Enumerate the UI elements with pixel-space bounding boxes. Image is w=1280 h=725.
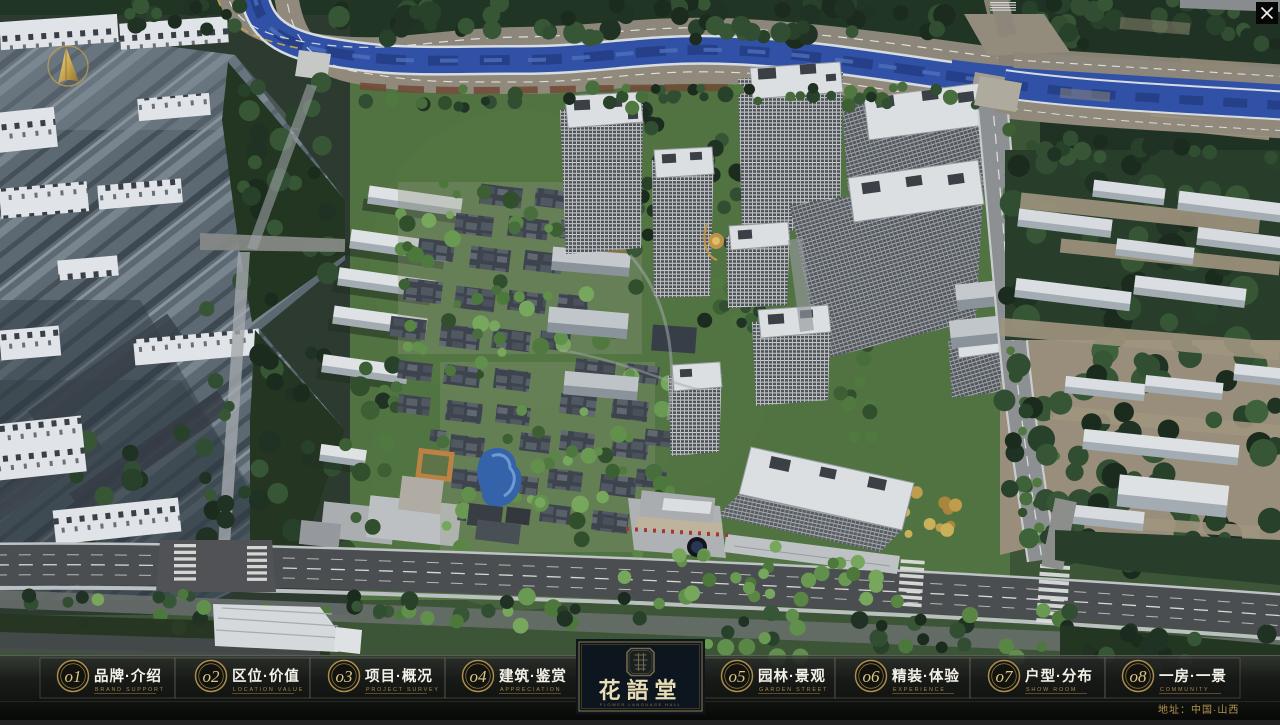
svg-text:PROJECT SURVEY: PROJECT SURVEY xyxy=(366,687,440,693)
svg-text:区位·价值: 区位·价值 xyxy=(232,667,300,685)
svg-text:o4: o4 xyxy=(470,667,488,686)
svg-text:户型·分布: 户型·分布 xyxy=(1025,667,1093,685)
svg-text:SHOW ROOM: SHOW ROOM xyxy=(1026,687,1077,693)
svg-text:一房·一景: 一房·一景 xyxy=(1159,667,1227,685)
svg-text:LOCATION VALUE: LOCATION VALUE xyxy=(233,687,304,693)
svg-text:EXPERIENCE: EXPERIENCE xyxy=(893,687,946,693)
svg-text:o6: o6 xyxy=(863,667,881,686)
svg-text:COMMUNITY: COMMUNITY xyxy=(1160,687,1209,693)
svg-text:FLOWER LANGUAGE HALL: FLOWER LANGUAGE HALL xyxy=(600,702,682,707)
svg-text:o8: o8 xyxy=(1130,667,1148,686)
svg-text:精装·体验: 精装·体验 xyxy=(892,667,960,685)
svg-text:GARDEN STREET: GARDEN STREET xyxy=(759,687,828,693)
svg-text:地址：中国·山西: 地址：中国·山西 xyxy=(1158,703,1239,716)
svg-text:项目·概况: 项目·概况 xyxy=(365,667,433,685)
svg-text:花語堂: 花語堂 xyxy=(598,678,682,703)
svg-text:o5: o5 xyxy=(729,667,746,686)
svg-text:BRAND SUPPORT: BRAND SUPPORT xyxy=(95,687,165,693)
svg-text:o7: o7 xyxy=(996,667,1015,686)
svg-text:o2: o2 xyxy=(203,667,221,686)
svg-text:建筑·鉴赏: 建筑·鉴赏 xyxy=(499,667,567,685)
svg-text:园林·景观: 园林·景观 xyxy=(758,667,826,685)
svg-text:o3: o3 xyxy=(336,667,353,686)
svg-text:APPRECIATION: APPRECIATION xyxy=(500,687,561,693)
svg-text:品牌·介绍: 品牌·介绍 xyxy=(94,667,162,685)
svg-text:o1: o1 xyxy=(65,667,82,686)
